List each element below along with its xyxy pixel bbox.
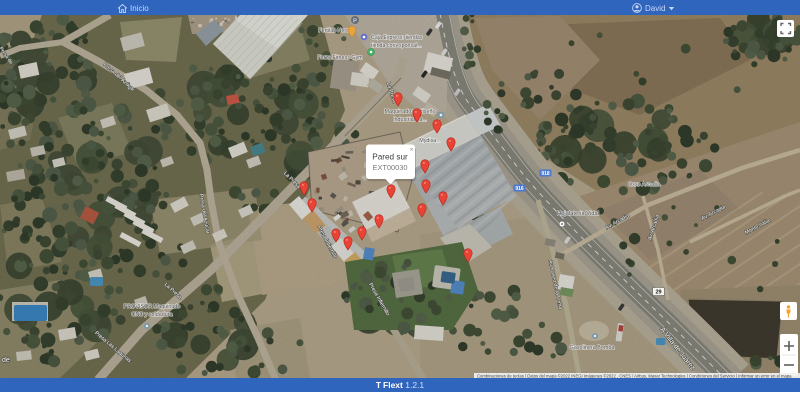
svg-text:Caja Express: tiendas: Caja Express: tiendas [371, 35, 423, 41]
svg-text:29: 29 [655, 290, 661, 296]
svg-text:Pared sur: Pared sur [372, 153, 408, 162]
svg-text:EXT00030: EXT00030 [373, 163, 408, 172]
svg-text:Mydisa...: Mydisa... [419, 138, 441, 144]
svg-text:Gasolinera Bomba: Gasolinera Bomba [570, 345, 615, 351]
svg-text:PROVISOR Maquinado: PROVISOR Maquinado [124, 304, 181, 310]
svg-text:CNC y soldadura: CNC y soldadura [131, 312, 172, 318]
svg-text:Industrial La...: Industrial La... [393, 117, 427, 123]
svg-text:tienda corresponsal...: tienda corresponsal... [371, 43, 422, 49]
svg-text:×: × [410, 147, 414, 154]
svg-text:Hojalateria Vidal: Hojalateria Vidal [557, 211, 599, 217]
svg-text:Oxxo Arcadia: Oxxo Arcadia [628, 182, 660, 188]
svg-text:918: 918 [541, 171, 550, 177]
svg-text:Forza Fitness Gym: Forza Fitness Gym [317, 55, 363, 61]
svg-text:P: P [353, 18, 357, 24]
svg-text:de: de [2, 357, 10, 364]
svg-text:916: 916 [515, 186, 524, 192]
svg-text:Maquinados y diseño: Maquinados y diseño [385, 109, 436, 115]
